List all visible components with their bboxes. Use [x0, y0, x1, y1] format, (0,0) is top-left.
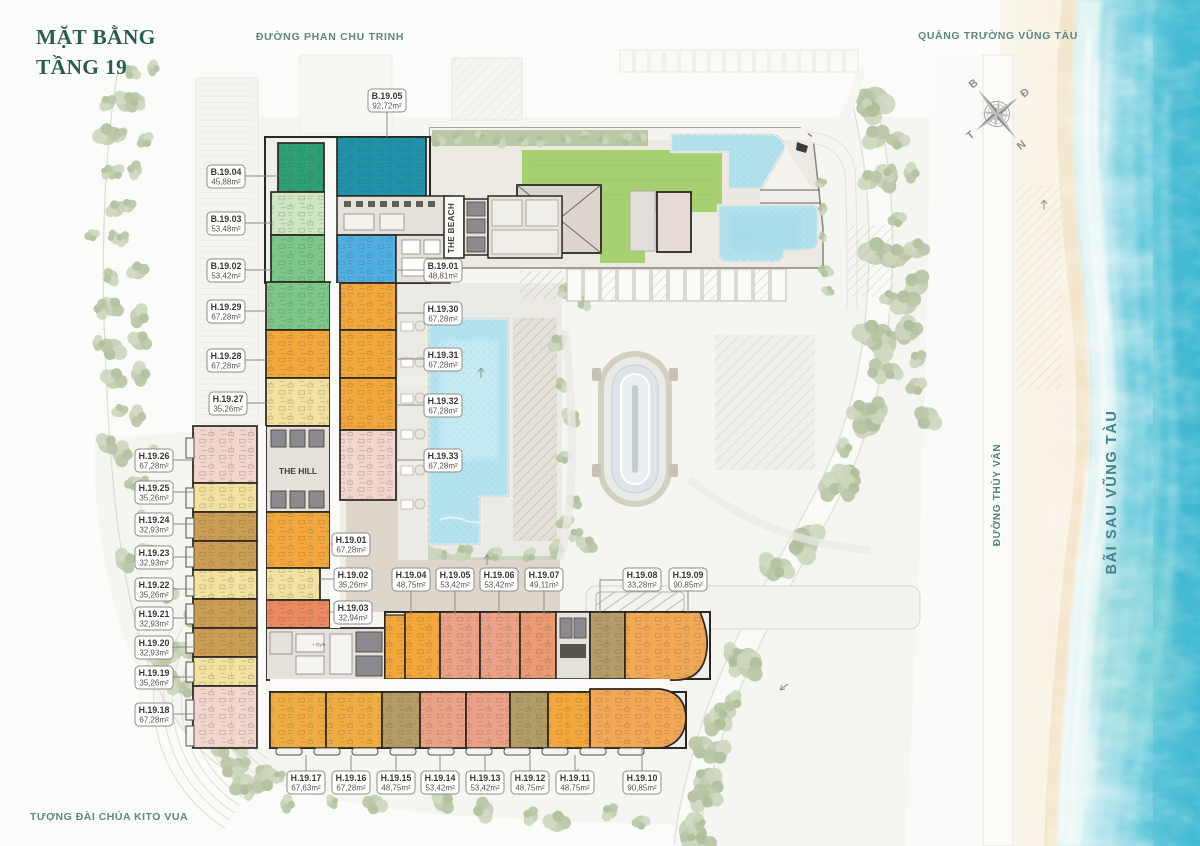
svg-text:32,93m²: 32,93m² — [139, 559, 169, 568]
svg-text:32,93m²: 32,93m² — [139, 649, 169, 658]
svg-text:H.19.26: H.19.26 — [139, 451, 170, 461]
svg-text:32,94m²: 32,94m² — [338, 614, 368, 623]
svg-text:B.19.04: B.19.04 — [211, 167, 242, 177]
svg-text:67,28m²: 67,28m² — [428, 407, 458, 416]
svg-text:+ Gym: + Gym — [312, 642, 326, 647]
svg-text:H.19.21: H.19.21 — [139, 609, 170, 619]
svg-text:32,93m²: 32,93m² — [139, 620, 169, 629]
svg-text:H.19.17: H.19.17 — [291, 773, 322, 783]
svg-text:H.19.28: H.19.28 — [211, 351, 242, 361]
svg-text:53,42m²: 53,42m² — [484, 581, 514, 590]
svg-text:48,75m²: 48,75m² — [396, 581, 426, 590]
svg-text:67,28m²: 67,28m² — [428, 361, 458, 370]
svg-text:H.19.11: H.19.11 — [560, 773, 590, 783]
svg-text:H.19.09: H.19.09 — [673, 570, 704, 580]
svg-text:H.19.01: H.19.01 — [336, 535, 367, 545]
svg-text:THE HILL: THE HILL — [279, 466, 317, 476]
svg-text:53,42m²: 53,42m² — [440, 581, 470, 590]
svg-text:67,63m²: 67,63m² — [291, 784, 321, 793]
svg-text:92,72m²: 92,72m² — [372, 102, 402, 111]
svg-text:35,26m²: 35,26m² — [139, 679, 169, 688]
svg-text:H.19.05: H.19.05 — [440, 570, 471, 580]
svg-text:67,28m²: 67,28m² — [336, 784, 366, 793]
svg-text:H.19.04: H.19.04 — [396, 570, 427, 580]
svg-text:BÃI SAU VŨNG TÀU: BÃI SAU VŨNG TÀU — [1102, 410, 1120, 575]
svg-text:B.19.01: B.19.01 — [428, 261, 459, 271]
svg-text:H.19.16: H.19.16 — [336, 773, 367, 783]
svg-text:H.19.19: H.19.19 — [139, 668, 170, 678]
svg-text:TƯỢNG ĐÀI CHÚA KITO VUA: TƯỢNG ĐÀI CHÚA KITO VUA — [30, 810, 188, 823]
svg-text:H.19.33: H.19.33 — [428, 451, 459, 461]
svg-text:H.19.14: H.19.14 — [425, 773, 456, 783]
svg-text:48,75m²: 48,75m² — [560, 784, 590, 793]
svg-text:H.19.32: H.19.32 — [428, 396, 459, 406]
svg-text:B.19.05: B.19.05 — [372, 91, 403, 101]
svg-text:B.19.02: B.19.02 — [211, 261, 242, 271]
svg-text:48,75m²: 48,75m² — [381, 784, 411, 793]
svg-text:H.19.18: H.19.18 — [139, 705, 170, 715]
svg-text:H.19.15: H.19.15 — [381, 773, 412, 783]
svg-text:67,28m²: 67,28m² — [211, 313, 241, 322]
svg-text:H.19.03: H.19.03 — [338, 603, 369, 613]
svg-text:90,85m²: 90,85m² — [627, 784, 657, 793]
svg-text:H.19.08: H.19.08 — [627, 570, 658, 580]
svg-text:45,88m²: 45,88m² — [211, 178, 241, 187]
svg-text:33,28m²: 33,28m² — [627, 581, 657, 590]
svg-text:ĐƯỜNG PHAN CHU TRINH: ĐƯỜNG PHAN CHU TRINH — [256, 30, 404, 43]
svg-text:TẦNG 19: TẦNG 19 — [36, 55, 127, 79]
svg-text:H.19.13: H.19.13 — [470, 773, 501, 783]
svg-text:35,26m²: 35,26m² — [338, 581, 368, 590]
svg-text:67,28m²: 67,28m² — [139, 716, 169, 725]
svg-text:H.19.24: H.19.24 — [139, 515, 170, 525]
svg-text:H.19.22: H.19.22 — [139, 580, 170, 590]
svg-text:H.19.31: H.19.31 — [428, 350, 459, 360]
svg-text:H.19.07: H.19.07 — [529, 570, 560, 580]
svg-text:B.19.03: B.19.03 — [211, 214, 242, 224]
svg-text:67,28m²: 67,28m² — [336, 546, 366, 555]
svg-text:H.19.10: H.19.10 — [627, 773, 658, 783]
svg-text:32,93m²: 32,93m² — [139, 526, 169, 535]
svg-text:H.19.27: H.19.27 — [213, 394, 244, 404]
svg-text:H.19.12: H.19.12 — [515, 773, 546, 783]
svg-text:H.19.29: H.19.29 — [211, 302, 242, 312]
svg-text:THE BEACH: THE BEACH — [447, 203, 456, 253]
svg-text:MẶT BẰNG: MẶT BẰNG — [36, 25, 156, 49]
svg-text:90,85m²: 90,85m² — [673, 581, 703, 590]
svg-text:67,28m²: 67,28m² — [428, 462, 458, 471]
svg-text:H.19.02: H.19.02 — [338, 570, 369, 580]
svg-text:53,48m²: 53,48m² — [211, 225, 241, 234]
svg-text:H.19.20: H.19.20 — [139, 638, 170, 648]
svg-text:67,28m²: 67,28m² — [139, 462, 169, 471]
svg-text:48,75m²: 48,75m² — [515, 784, 545, 793]
svg-text:ĐƯỜNG THÙY VÂN: ĐƯỜNG THÙY VÂN — [990, 444, 1003, 547]
svg-text:67,28m²: 67,28m² — [428, 315, 458, 324]
svg-text:53,42m²: 53,42m² — [211, 272, 241, 281]
svg-text:35,26m²: 35,26m² — [139, 591, 169, 600]
svg-text:35,26m²: 35,26m² — [213, 405, 243, 414]
svg-text:53,42m²: 53,42m² — [470, 784, 500, 793]
svg-text:QUẢNG TRƯỜNG VŨNG TÀU: QUẢNG TRƯỜNG VŨNG TÀU — [918, 29, 1078, 42]
svg-text:H.19.25: H.19.25 — [139, 483, 170, 493]
svg-text:H.19.30: H.19.30 — [428, 304, 459, 314]
svg-text:48,81m²: 48,81m² — [428, 272, 458, 281]
svg-text:53,42m²: 53,42m² — [425, 784, 455, 793]
svg-text:H.19.06: H.19.06 — [484, 570, 515, 580]
svg-text:67,28m²: 67,28m² — [211, 362, 241, 371]
svg-text:H.19.23: H.19.23 — [139, 548, 170, 558]
svg-text:49,11m²: 49,11m² — [530, 581, 559, 590]
svg-text:35,26m²: 35,26m² — [139, 494, 169, 503]
